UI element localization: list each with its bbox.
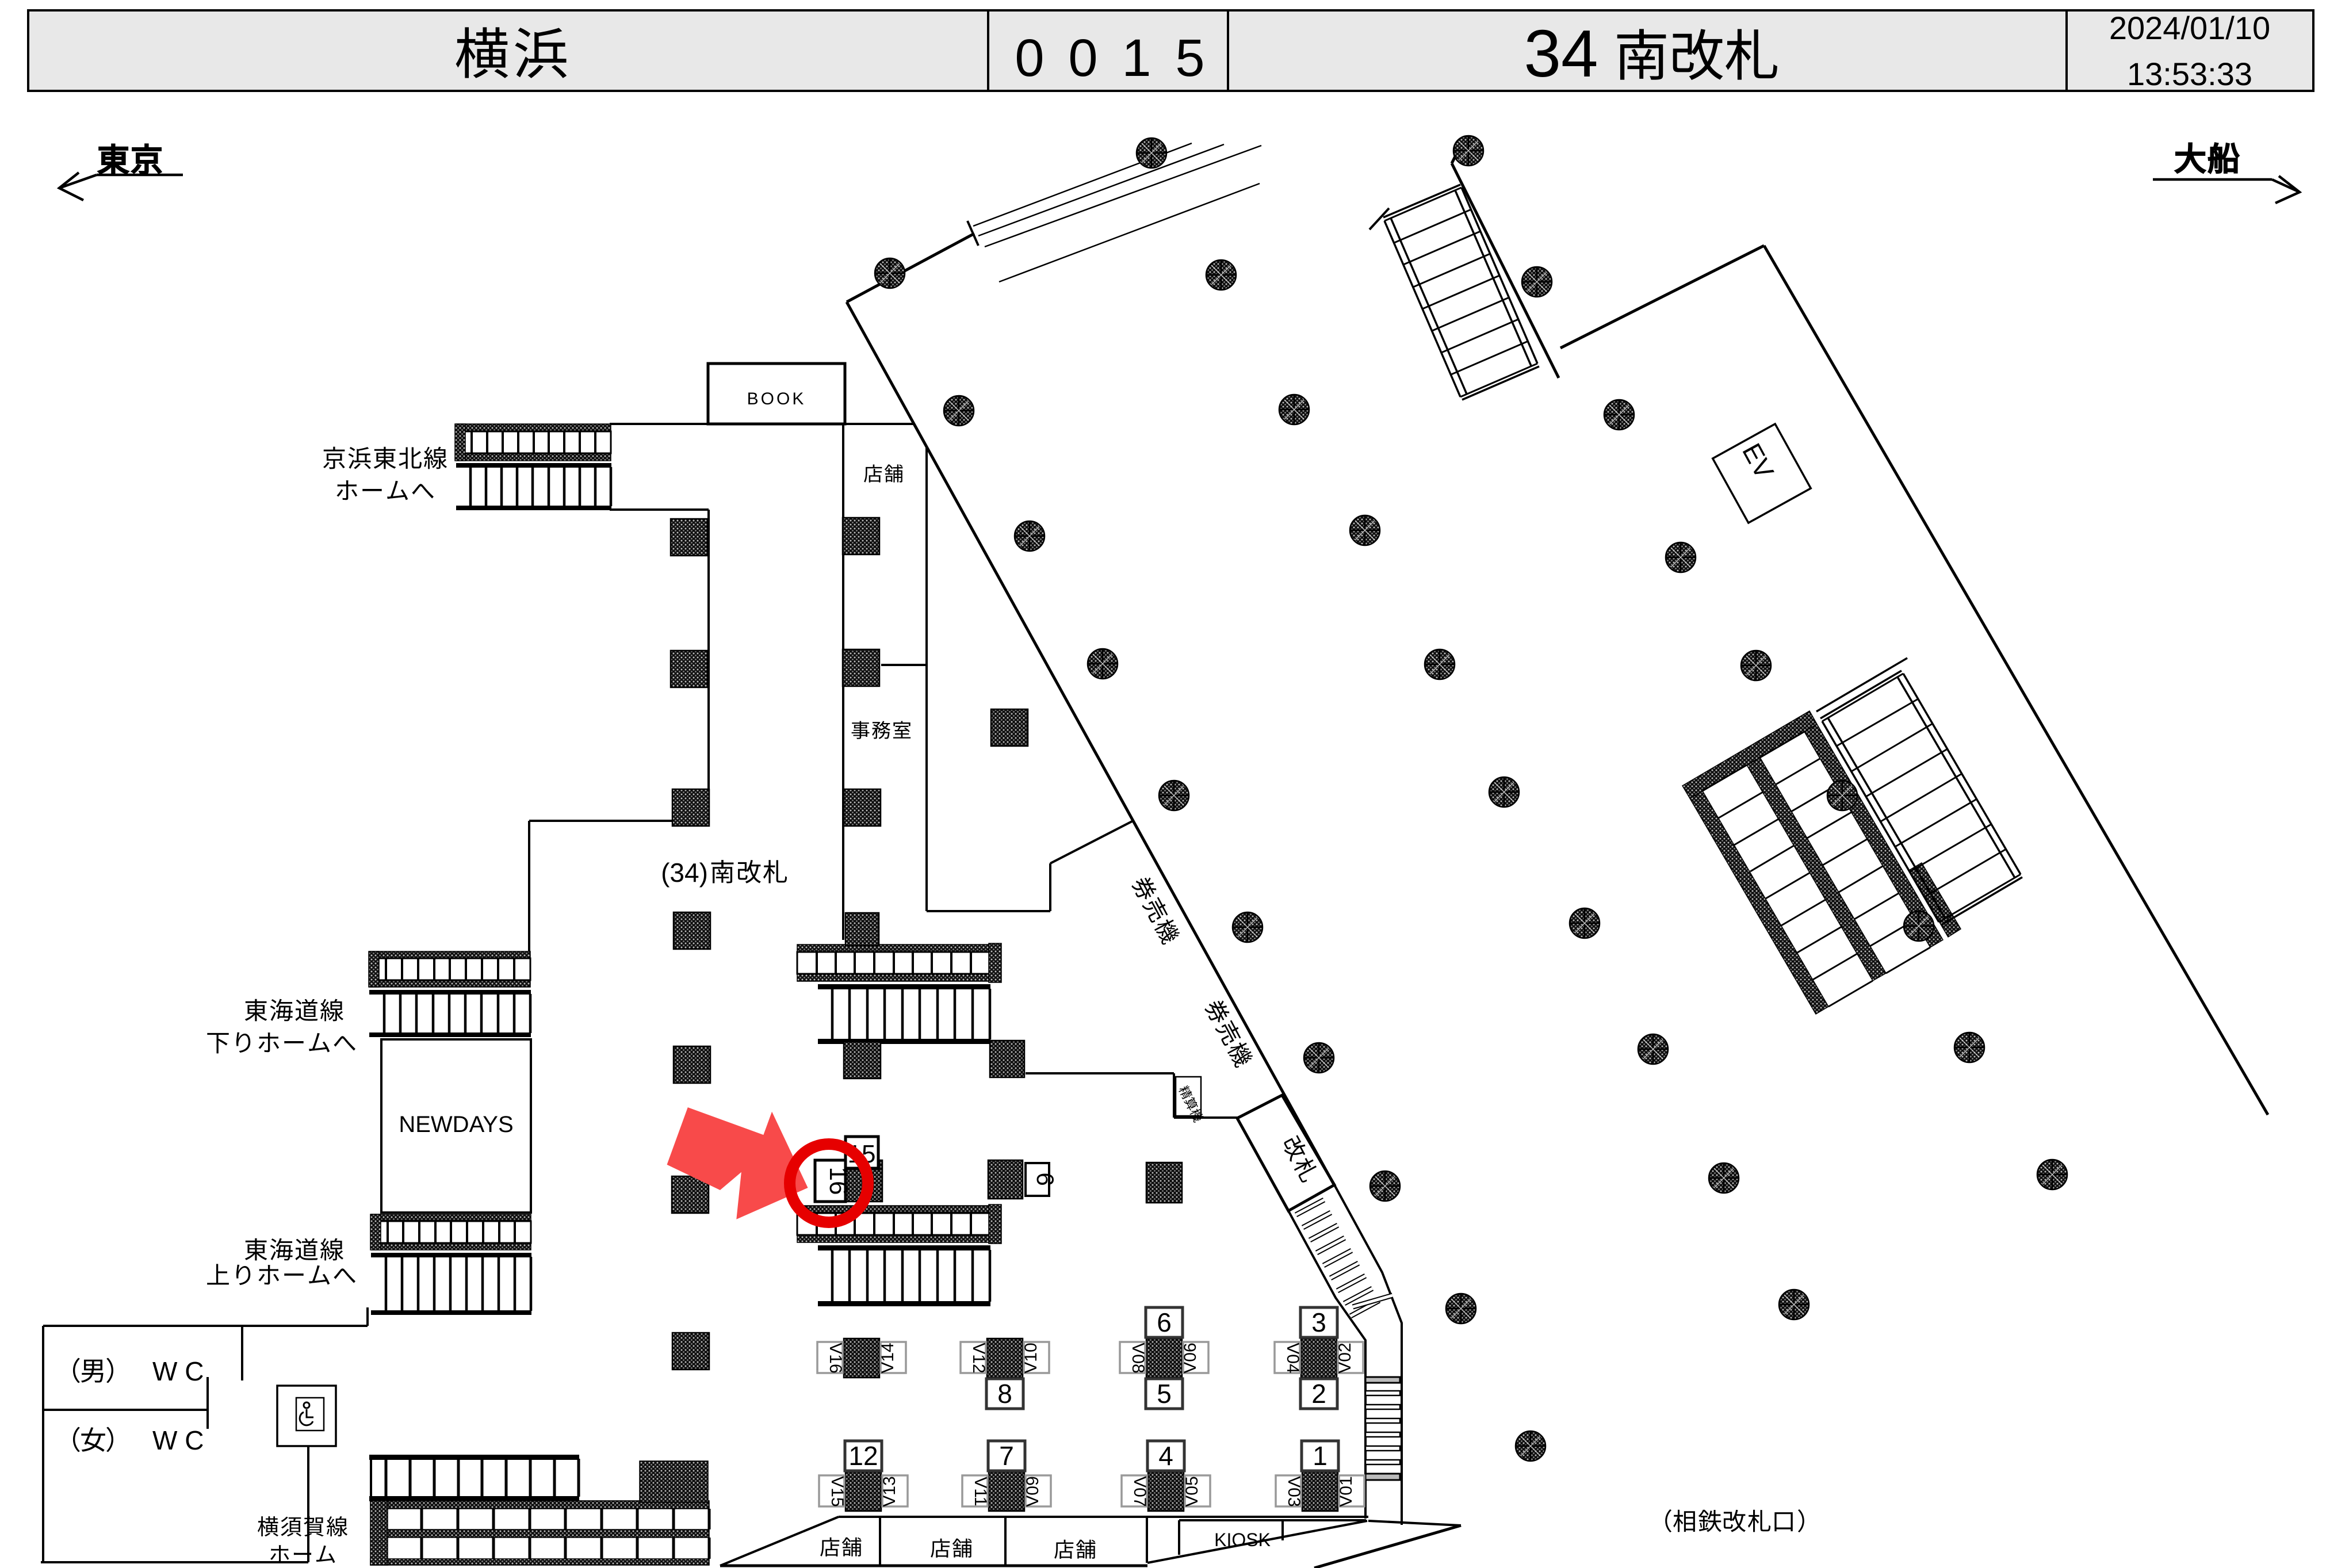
svg-text:6: 6	[1032, 1172, 1059, 1185]
svg-text:1: 1	[1122, 29, 1151, 87]
svg-text:V05: V05	[1183, 1476, 1202, 1506]
svg-text:13:53:33: 13:53:33	[2127, 56, 2252, 92]
svg-text:V07: V07	[1130, 1476, 1149, 1506]
svg-text:V01: V01	[1337, 1476, 1356, 1506]
svg-text:W C: W C	[152, 1356, 204, 1386]
svg-text:0: 0	[1068, 29, 1097, 87]
svg-text:V11: V11	[971, 1477, 990, 1506]
svg-text:V04: V04	[1283, 1343, 1302, 1373]
svg-text:V06: V06	[1181, 1343, 1200, 1373]
svg-text:V16: V16	[826, 1343, 845, 1373]
svg-text:V08: V08	[1128, 1343, 1147, 1373]
svg-text:(34): (34)	[661, 858, 708, 888]
svg-text:3: 3	[1311, 1307, 1326, 1337]
svg-text:2: 2	[1311, 1379, 1326, 1409]
svg-text:V09: V09	[1023, 1476, 1042, 1506]
svg-text:34: 34	[1524, 16, 1598, 91]
svg-text:V03: V03	[1284, 1476, 1303, 1506]
svg-text:8: 8	[997, 1379, 1012, 1409]
svg-text:2024/01/10: 2024/01/10	[2109, 10, 2270, 46]
svg-text:V10: V10	[1022, 1343, 1040, 1373]
svg-text:BOOK: BOOK	[747, 389, 806, 408]
svg-text:7: 7	[999, 1441, 1014, 1471]
svg-text:0: 0	[1015, 29, 1044, 87]
svg-text:1: 1	[1313, 1441, 1327, 1471]
svg-text:V14: V14	[878, 1343, 897, 1373]
svg-text:KIOSK: KIOSK	[1214, 1529, 1271, 1550]
svg-text:V13: V13	[880, 1476, 899, 1506]
svg-text:16: 16	[824, 1167, 852, 1195]
svg-text:5: 5	[1157, 1379, 1172, 1409]
svg-text:NEWDAYS: NEWDAYS	[399, 1112, 513, 1137]
svg-text:V15: V15	[828, 1476, 847, 1506]
svg-text:V12: V12	[969, 1343, 988, 1373]
svg-text:5: 5	[1175, 29, 1204, 87]
svg-text:W C: W C	[152, 1425, 204, 1455]
svg-text:4: 4	[1158, 1441, 1173, 1471]
svg-text:12: 12	[848, 1441, 878, 1471]
svg-text:V02: V02	[1336, 1343, 1355, 1373]
svg-text:6: 6	[1157, 1307, 1172, 1337]
